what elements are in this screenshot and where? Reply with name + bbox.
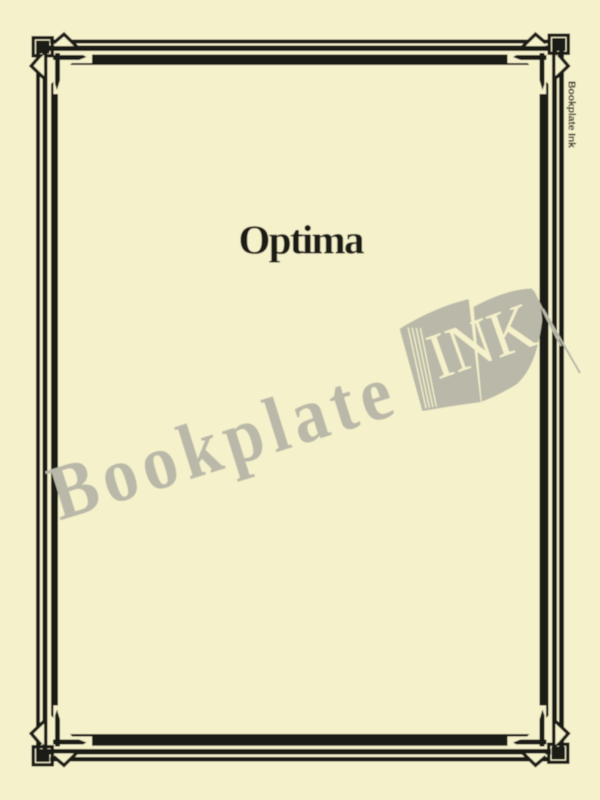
svg-text:Bookplate Ink: Bookplate Ink [566, 81, 578, 148]
svg-text:Optima: Optima [239, 216, 365, 262]
